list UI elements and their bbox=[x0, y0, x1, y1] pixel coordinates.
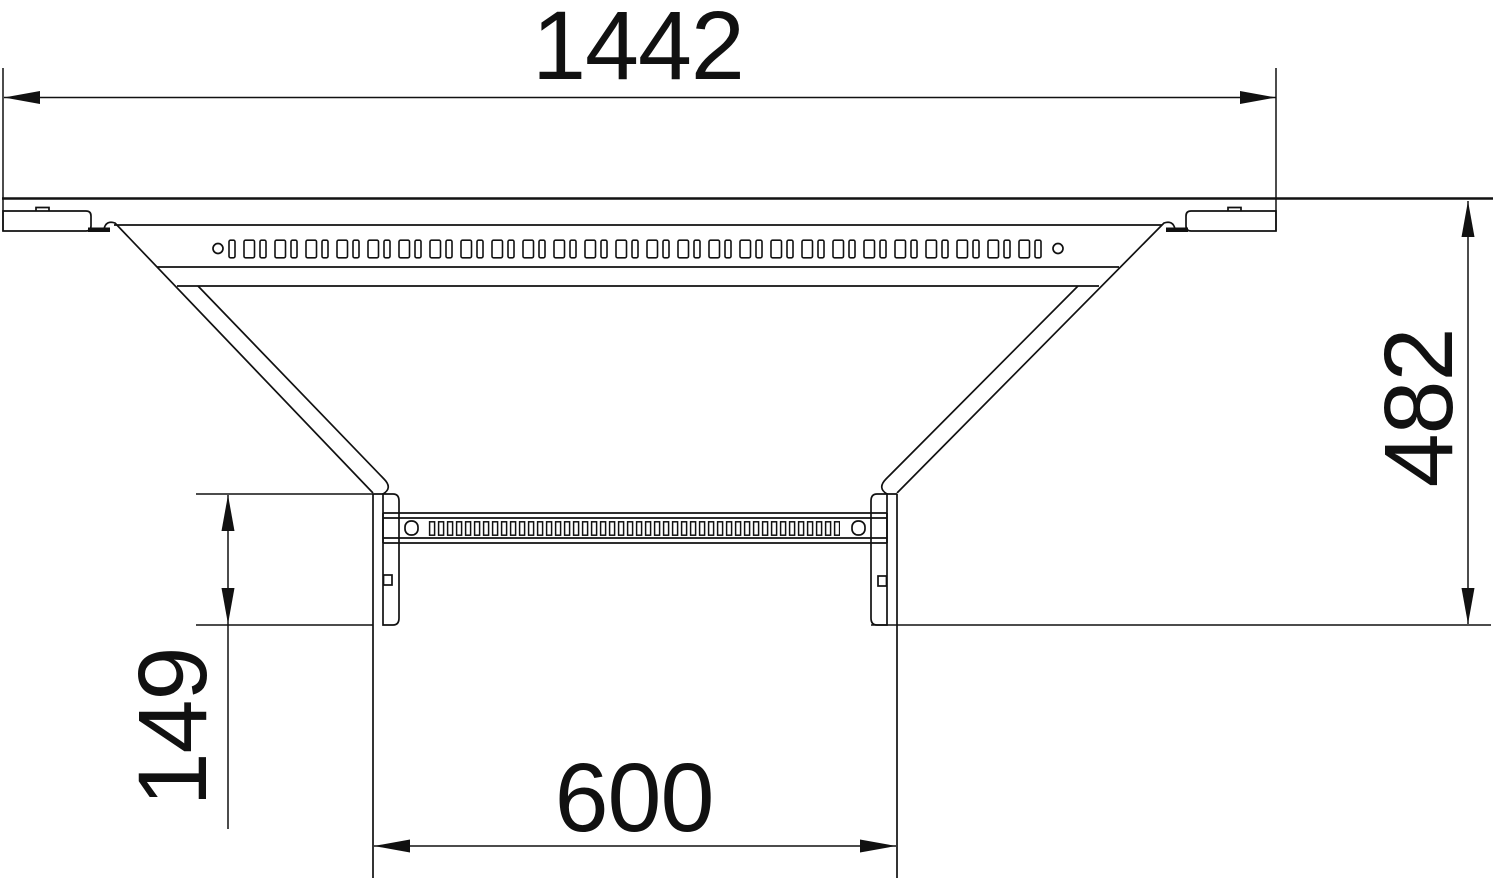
left-angled-rail-inner-edge bbox=[198, 286, 388, 494]
dim-600-arrow-right-icon bbox=[860, 840, 896, 853]
dim-482-arrow-top-icon bbox=[1462, 201, 1475, 237]
branch-rung bbox=[383, 513, 887, 543]
right-angled-rail-outer-edge bbox=[897, 222, 1175, 493]
left-angled-rail-outer-edge bbox=[104, 222, 373, 493]
left-angled-rail bbox=[104, 222, 388, 494]
drawing-svg: 1442 482 149 600 bbox=[0, 0, 1500, 878]
dim-1442-arrow-left-icon bbox=[4, 91, 40, 104]
dim-600-arrow-left-icon bbox=[374, 840, 410, 853]
main-rail-end-hole-right bbox=[1053, 244, 1063, 254]
dimension-branch-width: 600 bbox=[374, 743, 896, 853]
dim-482-label: 482 bbox=[1364, 329, 1473, 488]
branch-left-rail-notch bbox=[384, 575, 393, 585]
dim-482-arrow-bottom-icon bbox=[1462, 588, 1475, 624]
left-coupler-joint bbox=[88, 228, 110, 233]
right-coupler-plate bbox=[1186, 211, 1276, 231]
branch-rung-hole-left bbox=[405, 521, 418, 535]
branch-rung-perforations bbox=[428, 521, 840, 536]
dim-600-label: 600 bbox=[555, 743, 714, 852]
technical-drawing-canvas: 1442 482 149 600 bbox=[0, 0, 1500, 878]
dim-149-label: 149 bbox=[118, 648, 227, 807]
dimension-overall-width: 1442 bbox=[3, 0, 1276, 231]
right-coupler bbox=[1166, 208, 1276, 233]
main-rail-end-hole-left bbox=[213, 244, 223, 254]
dim-149-arrow-bottom-icon bbox=[222, 588, 235, 624]
main-rail-perforations bbox=[228, 239, 1042, 259]
right-coupler-joint bbox=[1166, 228, 1188, 233]
branch-rung-hole-right bbox=[852, 521, 865, 535]
branch-right-rail-notch bbox=[878, 576, 887, 586]
dim-1442-label: 1442 bbox=[532, 0, 744, 100]
left-coupler-plate bbox=[3, 211, 91, 231]
dimension-overall-depth: 482 bbox=[871, 201, 1491, 625]
right-angled-rail-inner-edge bbox=[882, 286, 1078, 494]
right-angled-rail bbox=[882, 222, 1175, 494]
left-coupler bbox=[3, 208, 110, 233]
dim-1442-arrow-right-icon bbox=[1240, 91, 1276, 104]
dimension-branch-stub-length: 149 bbox=[118, 494, 373, 829]
dim-149-arrow-top-icon bbox=[222, 495, 235, 531]
